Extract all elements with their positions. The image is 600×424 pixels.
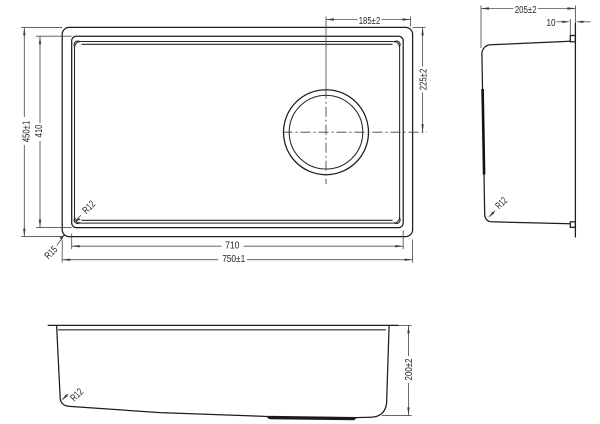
svg-text:710: 710 bbox=[225, 241, 239, 252]
svg-text:205±2: 205±2 bbox=[515, 5, 537, 16]
svg-text:185±2: 185±2 bbox=[359, 16, 381, 27]
svg-text:200±2: 200±2 bbox=[404, 358, 415, 380]
svg-text:10: 10 bbox=[547, 18, 556, 29]
svg-text:750±1: 750±1 bbox=[222, 254, 245, 265]
svg-text:225±2: 225±2 bbox=[419, 68, 430, 90]
svg-text:410: 410 bbox=[34, 124, 45, 137]
svg-text:450±1: 450±1 bbox=[22, 120, 33, 142]
